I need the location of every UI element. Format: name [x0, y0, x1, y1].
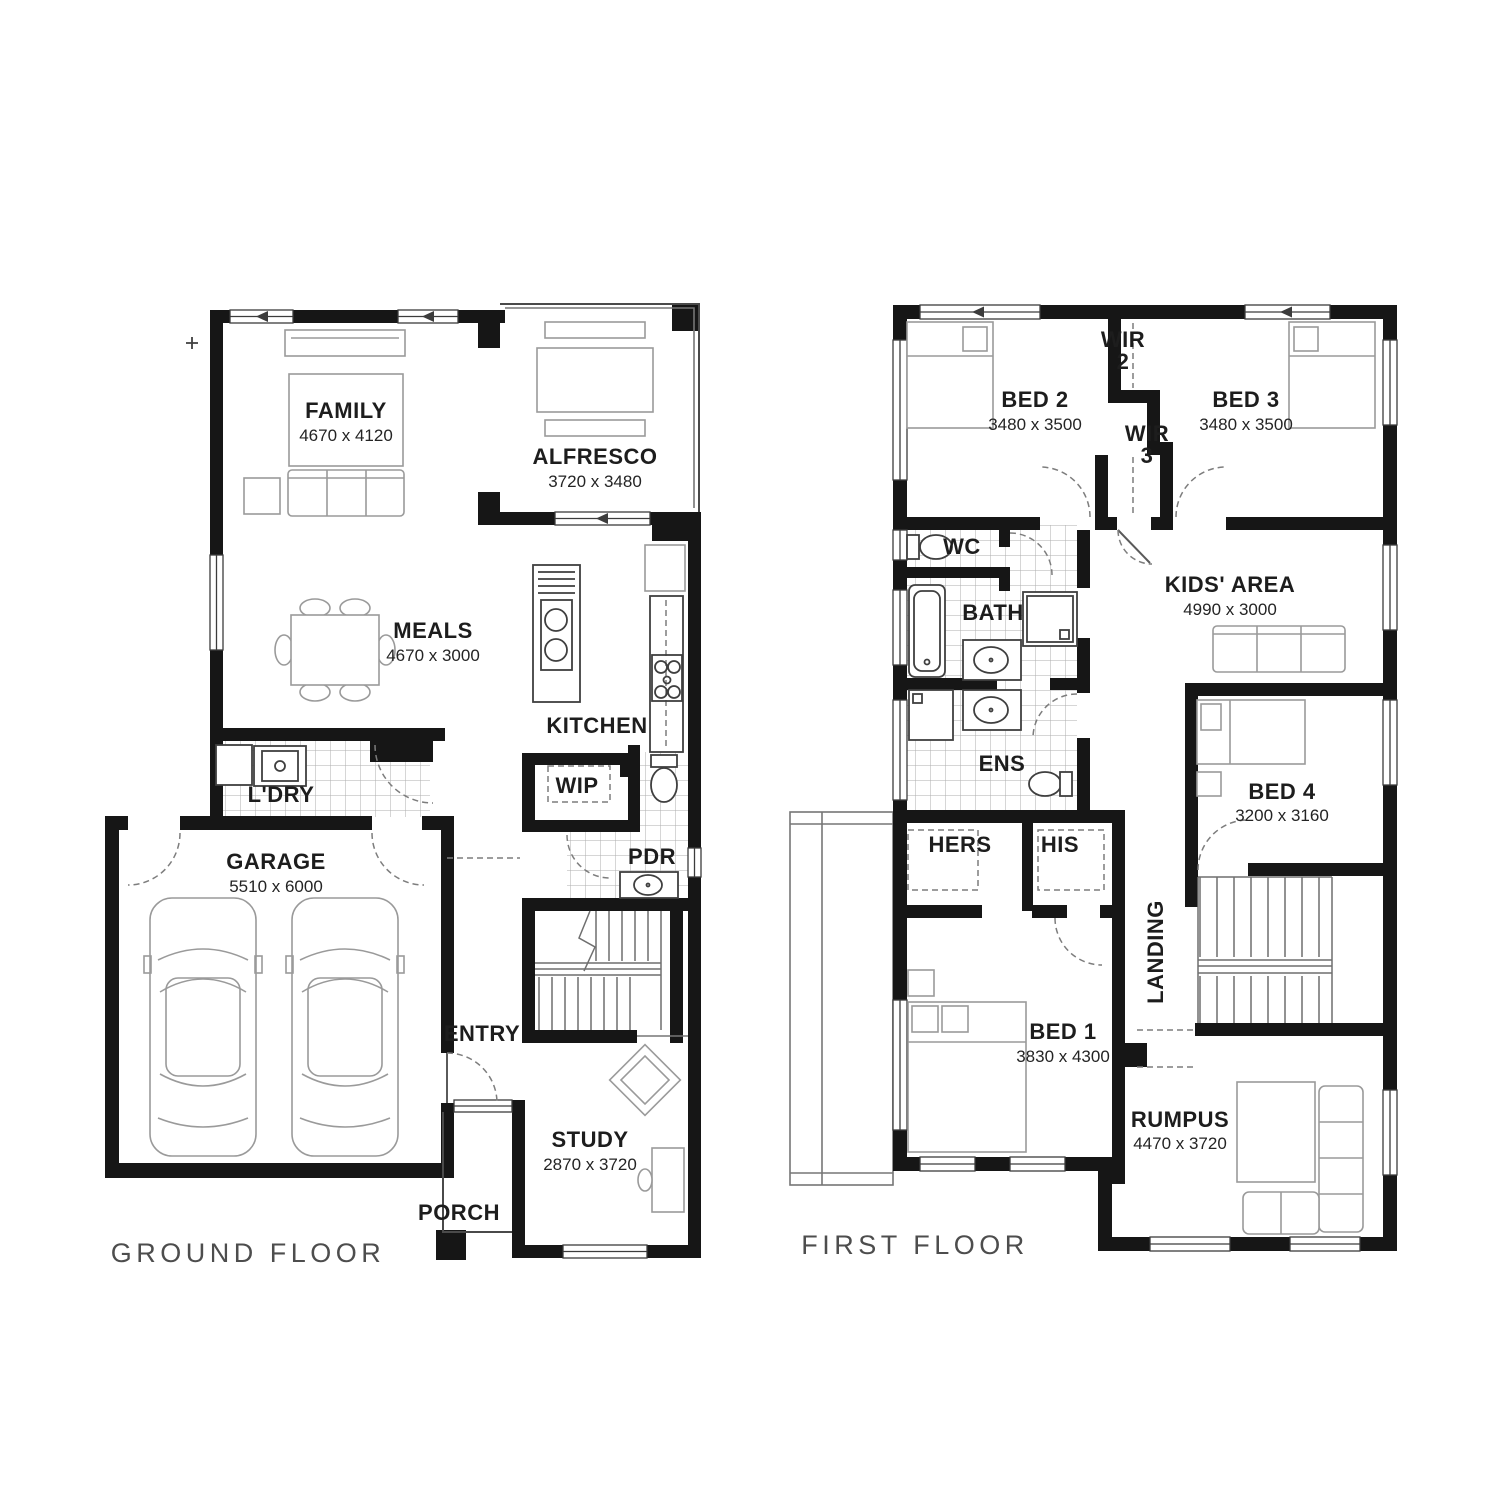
room-label-bed1: BED 1	[1029, 1019, 1096, 1044]
room-label-meals: MEALS	[393, 618, 473, 643]
bed3-door-arc	[1176, 467, 1226, 517]
room-dims-kids: 4990 x 3000	[1183, 600, 1277, 619]
room-label-landing: LANDING	[1143, 900, 1168, 1004]
room-label-family: FAMILY	[305, 398, 387, 423]
room-label-garage: GARAGE	[226, 849, 326, 874]
room-label-laundry: L'DRY	[248, 782, 315, 807]
ground-floor-caption: GROUND FLOOR	[111, 1238, 386, 1268]
side-table	[908, 970, 934, 996]
ground-staircase	[535, 911, 661, 1030]
room-label-bath: BATH	[962, 600, 1023, 625]
window	[230, 310, 293, 323]
pillow	[912, 1006, 938, 1032]
pillow	[1294, 327, 1318, 351]
room-label-entry: ENTRY	[444, 1021, 520, 1046]
sofa	[288, 470, 404, 516]
window	[1383, 545, 1397, 630]
bed4-door-arc	[1198, 820, 1248, 870]
toilet-icon	[651, 755, 677, 802]
laundry-fittings	[216, 745, 306, 786]
dining-table	[291, 615, 379, 685]
garage-door-arc-left	[128, 833, 180, 885]
rumpus-table	[1237, 1082, 1315, 1182]
desk	[652, 1148, 684, 1212]
window	[893, 530, 907, 560]
window	[1150, 1237, 1230, 1251]
ground-floor-plan: FAMILY 4670 x 4120 ALFRESCO 3720 x 3480 …	[105, 303, 701, 1268]
fridge-space	[645, 545, 685, 591]
vanity-basin	[963, 690, 1021, 730]
room-label-kitchen: KITCHEN	[546, 713, 647, 738]
pillow	[942, 1006, 968, 1032]
room-label-wc: WC	[943, 534, 981, 559]
room-label-bed3: BED 3	[1212, 387, 1279, 412]
bench-seat	[545, 420, 645, 436]
room-label-ens: ENS	[979, 751, 1026, 776]
side-table	[1197, 772, 1221, 796]
room-label-wip: WIP	[555, 773, 598, 798]
stair-break-line	[579, 911, 595, 971]
window	[893, 590, 907, 665]
entry-door-arc	[447, 1053, 497, 1103]
room-label-pdr: PDR	[628, 844, 676, 869]
room-label-kids: KIDS' AREA	[1165, 572, 1295, 597]
bed1-furniture	[908, 970, 1026, 1152]
side-table	[244, 478, 280, 514]
rumpus-furniture	[1237, 1082, 1363, 1234]
kids-area-sofa	[1213, 626, 1345, 672]
window	[1245, 305, 1330, 319]
toilet-icon	[1029, 772, 1072, 796]
first-staircase	[1198, 877, 1332, 1023]
shower	[1023, 592, 1077, 646]
room-label-his: HIS	[1041, 832, 1079, 857]
window	[555, 512, 650, 525]
vanity-basin	[963, 640, 1021, 680]
window	[920, 1157, 975, 1171]
room-dims-bed4: 3200 x 3160	[1235, 806, 1329, 825]
room-dims-study: 2870 x 3720	[543, 1155, 637, 1174]
window	[688, 848, 701, 877]
laundry-cabinet	[216, 745, 252, 785]
room-num-wir2: 2	[1117, 349, 1130, 374]
datum-cross-icon	[186, 337, 198, 349]
balcony-outline	[790, 812, 893, 1185]
occasional-chair	[610, 1045, 681, 1116]
room-num-wir3: 3	[1141, 443, 1154, 468]
garage-door-arc-right	[372, 833, 424, 885]
family-furniture	[244, 330, 405, 516]
room-label-bed2: BED 2	[1001, 387, 1068, 412]
cooktop	[652, 655, 682, 701]
window	[1010, 1157, 1065, 1171]
floorplan-canvas: FAMILY 4670 x 4120 ALFRESCO 3720 x 3480 …	[0, 0, 1500, 1500]
pillow	[1201, 704, 1221, 730]
bed3-furniture	[1289, 322, 1375, 428]
room-label-alfresco: ALFRESCO	[533, 444, 658, 469]
window	[893, 1000, 907, 1130]
window	[1383, 340, 1397, 425]
room-dims-meals: 4670 x 3000	[386, 646, 480, 665]
window	[563, 1245, 647, 1258]
room-dims-family: 4670 x 4120	[299, 426, 393, 445]
window	[893, 700, 907, 800]
window	[1290, 1237, 1360, 1251]
bed2-door-arc	[1040, 467, 1090, 517]
desk-chair	[638, 1169, 652, 1191]
bed2-furniture	[907, 322, 993, 428]
shower	[909, 690, 953, 740]
room-label-hers: HERS	[928, 832, 991, 857]
window	[1383, 700, 1397, 785]
room-dims-bed1: 3830 x 4300	[1016, 1047, 1110, 1066]
room-dims-alfresco: 3720 x 3480	[548, 472, 642, 491]
window	[210, 555, 223, 650]
bed1-door-arc	[1055, 918, 1102, 965]
tv-unit	[285, 330, 405, 356]
window	[1383, 1090, 1397, 1175]
room-dims-rumpus: 4470 x 3720	[1133, 1134, 1227, 1153]
room-label-study: STUDY	[551, 1127, 628, 1152]
pillow	[963, 327, 987, 351]
alfresco-furniture	[537, 322, 653, 436]
room-label-bed4: BED 4	[1248, 779, 1316, 804]
first-floor-caption: FIRST FLOOR	[801, 1230, 1029, 1260]
room-dims-bed2: 3480 x 3500	[988, 415, 1082, 434]
window	[920, 305, 1040, 319]
first-floor-plan: BED 2 3480 x 3500 WIR 2 BED 3 3480 x 350…	[790, 305, 1397, 1260]
vanity-basin	[620, 872, 678, 898]
car	[286, 898, 404, 1156]
bench-seat	[545, 322, 645, 338]
car	[144, 898, 262, 1156]
window	[398, 310, 458, 323]
room-label-porch: PORCH	[418, 1200, 500, 1225]
garage-cars	[144, 898, 404, 1156]
room-dims-bed3: 3480 x 3500	[1199, 415, 1293, 434]
room-label-rumpus: RUMPUS	[1131, 1107, 1229, 1132]
outdoor-table	[537, 348, 653, 412]
dining-setting	[275, 599, 395, 701]
front-door-sill	[454, 1100, 512, 1112]
window	[893, 340, 907, 480]
room-dims-garage: 5510 x 6000	[229, 877, 323, 896]
